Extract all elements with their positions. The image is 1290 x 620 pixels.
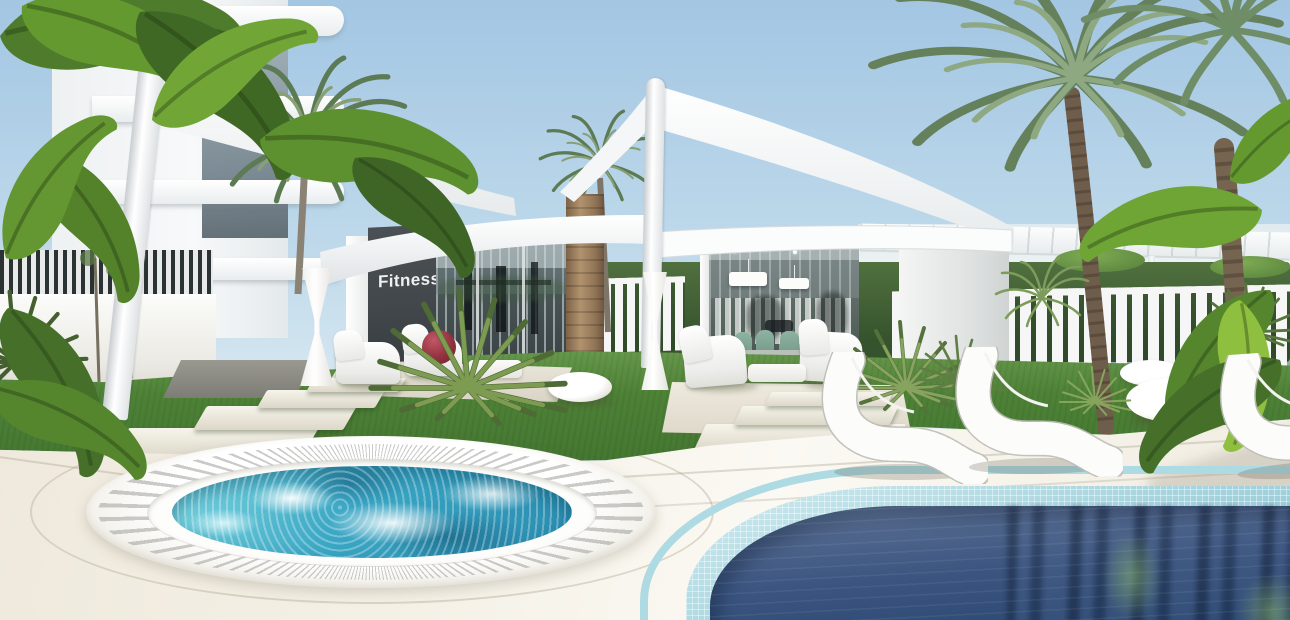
- pool-resort-render: Zona Fitness: [0, 0, 1290, 620]
- fitness-sign-line2: Fitness: [378, 266, 436, 295]
- gym-ball: [422, 330, 456, 364]
- white-chaise: [682, 333, 748, 388]
- hedge-bush: [1055, 248, 1145, 272]
- jacuzzi-water: [172, 466, 572, 558]
- white-low-table: [748, 364, 806, 382]
- stepping-stone: [734, 406, 899, 425]
- building-glass-facade: [202, 42, 288, 238]
- white-chaise: [799, 330, 864, 383]
- recessed-light: [793, 250, 797, 254]
- egg-stone: [1126, 378, 1218, 422]
- white-ottoman: [468, 360, 522, 378]
- balcony-slab: [92, 96, 344, 122]
- stepping-stone: [257, 390, 385, 408]
- pendant-lamp: [729, 272, 767, 286]
- stepping-stone: [765, 392, 894, 406]
- pool-water: [710, 506, 1290, 620]
- water-ripples: [710, 506, 1290, 620]
- balcony-slab: [92, 6, 344, 36]
- white-armchair: [336, 342, 400, 384]
- fitness-sign-line1: Zona: [378, 240, 436, 269]
- hedge-bush: [1210, 256, 1290, 278]
- swimming-pool: [686, 486, 1290, 620]
- recessed-light: [763, 247, 767, 251]
- glass-reflection: [438, 276, 564, 302]
- stepping-stone: [193, 406, 357, 430]
- ground-floor-louvers: [0, 250, 213, 298]
- pendant-lamp: [779, 278, 809, 289]
- recessed-light: [733, 249, 737, 253]
- egg-stone: [548, 372, 612, 402]
